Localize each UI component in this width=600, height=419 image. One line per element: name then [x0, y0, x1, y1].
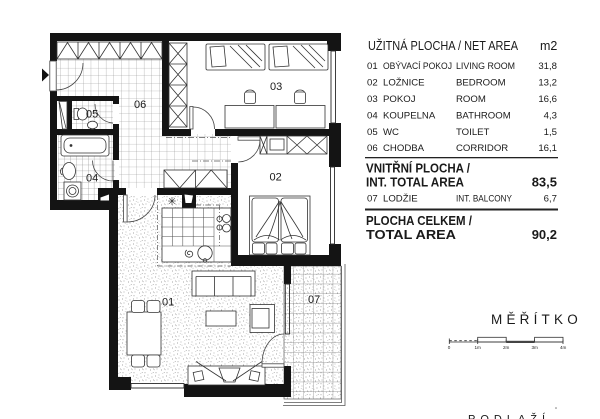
svg-text:31,8: 31,8 [538, 61, 557, 72]
svg-text:LIVING ROOM: LIVING ROOM [456, 61, 515, 72]
svg-text:CHODBA: CHODBA [383, 143, 425, 154]
svg-text:03: 03 [270, 81, 282, 93]
svg-text:04: 04 [86, 173, 98, 185]
svg-text:TOTAL AREA: TOTAL AREA [366, 227, 457, 242]
svg-text:1m: 1m [475, 345, 482, 350]
svg-text:3m: 3m [532, 345, 539, 350]
svg-text:07: 07 [308, 294, 320, 306]
svg-text:16,1: 16,1 [538, 143, 557, 154]
svg-text:CORRIDOR: CORRIDOR [456, 143, 508, 154]
svg-text:06: 06 [367, 143, 378, 154]
svg-text:ROOM: ROOM [456, 94, 486, 105]
svg-text:03: 03 [367, 94, 378, 105]
svg-text:MĚŘÍTKO: MĚŘÍTKO [491, 312, 582, 327]
svg-text:2m: 2m [503, 345, 510, 350]
svg-text:WC: WC [383, 127, 399, 138]
svg-text:OBÝVACÍ POKOJ: OBÝVACÍ POKOJ [383, 61, 452, 72]
svg-text:PODLAŽÍ: PODLAŽÍ [468, 413, 550, 419]
svg-text:INT. TOTAL AREA: INT. TOTAL AREA [366, 175, 465, 190]
svg-text:04: 04 [367, 111, 378, 122]
svg-text:m2: m2 [540, 39, 557, 53]
svg-text:01: 01 [367, 61, 378, 72]
svg-text:90,2: 90,2 [532, 227, 557, 242]
svg-text:1,5: 1,5 [544, 127, 557, 138]
svg-text:4,3: 4,3 [544, 111, 557, 122]
svg-text:01: 01 [162, 297, 174, 309]
svg-text:LODŽIE: LODŽIE [383, 194, 418, 205]
svg-text:05: 05 [367, 127, 378, 138]
svg-text:02: 02 [367, 78, 378, 89]
svg-text:BATHROOM: BATHROOM [456, 111, 511, 122]
svg-text:UŽITNÁ PLOCHA / NET AREA: UŽITNÁ PLOCHA / NET AREA [368, 38, 518, 53]
svg-text:16,6: 16,6 [538, 94, 557, 105]
svg-text:4m: 4m [560, 345, 567, 350]
svg-text:VNITŘNÍ PLOCHA /: VNITŘNÍ PLOCHA / [366, 161, 470, 176]
svg-text:POKOJ: POKOJ [383, 94, 416, 105]
svg-text:02: 02 [270, 172, 282, 184]
svg-text:06: 06 [134, 99, 146, 111]
svg-text:KOUPELNA: KOUPELNA [383, 111, 436, 122]
svg-text:6,7: 6,7 [544, 194, 557, 205]
svg-text:PLOCHA CELKEM /: PLOCHA CELKEM / [366, 213, 472, 228]
svg-text:TOILET: TOILET [456, 127, 490, 138]
svg-text:13,2: 13,2 [538, 78, 557, 89]
svg-text:83,5: 83,5 [532, 175, 557, 190]
svg-text:0: 0 [448, 345, 451, 350]
svg-text:07: 07 [367, 194, 378, 205]
svg-text:LOŽNICE: LOŽNICE [383, 78, 425, 89]
svg-text:05: 05 [86, 109, 98, 121]
svg-text:BEDROOM: BEDROOM [456, 78, 506, 89]
svg-text:INT. BALCONY: INT. BALCONY [456, 194, 513, 205]
